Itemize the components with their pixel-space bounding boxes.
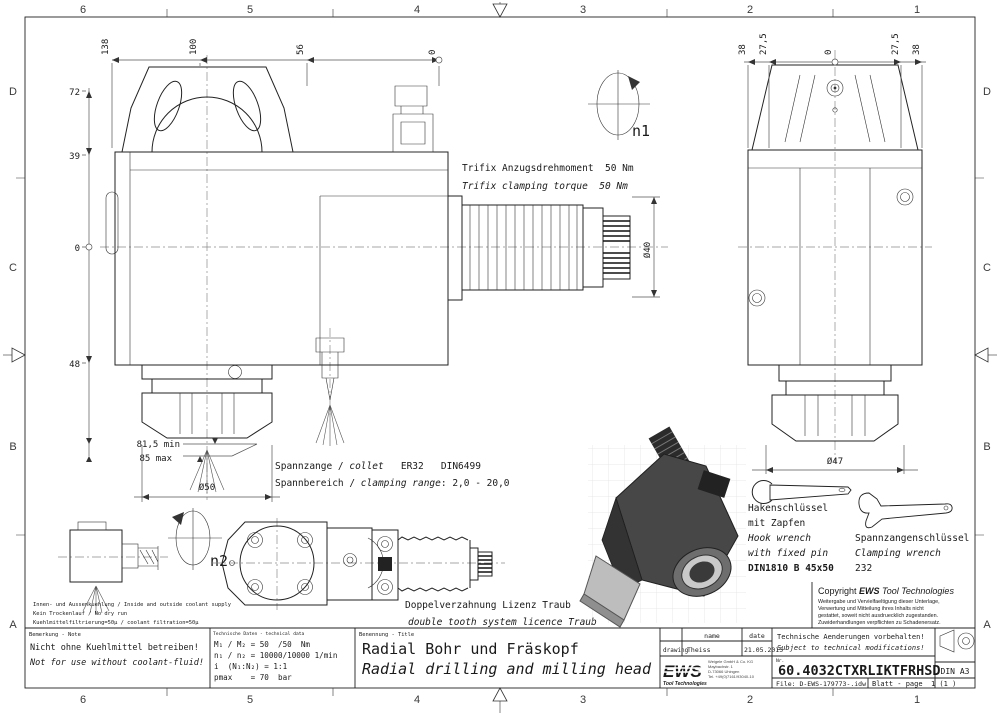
copyright-line: Verwertung und Mitteilung ihres Inhalts … xyxy=(818,606,924,612)
dim-label: 56 xyxy=(296,44,306,55)
tech-row: n₁ / n₂ = 10000/10000 1/min xyxy=(214,651,337,660)
n1-rotation-symbol: n1 xyxy=(588,70,650,140)
zone-col: 5 xyxy=(247,4,253,16)
tech-row: i (N₁:N₂) = 1:1 xyxy=(214,662,288,671)
copyright-line: Weitergabe und Vervielfaeltigung dieser … xyxy=(818,599,940,605)
title-block: Bemerkung - Note Nicht ohne Kuehlmittel … xyxy=(25,628,975,688)
centering-mark-top xyxy=(493,2,507,17)
rev-col-name: name xyxy=(704,632,720,640)
zone-col: 6 xyxy=(80,694,86,706)
projection-symbol-icon xyxy=(940,630,974,652)
dim-label: Ø50 xyxy=(199,482,215,493)
collet-val: ER32 DIN6499 xyxy=(384,461,482,472)
hook-wrench-drawing xyxy=(752,481,851,504)
dim-label: 0 xyxy=(428,50,438,55)
zone-col: 3 xyxy=(580,4,586,16)
zone-row: A xyxy=(9,619,17,631)
copyright-brand: EWS xyxy=(859,586,880,596)
tech-row: M₁ / M₂ = 50 /50 Nm xyxy=(214,640,310,649)
rev-row-name: Theiss xyxy=(687,646,711,654)
trifix-note-en: Trifix clamping torque 50 Nm xyxy=(462,181,628,192)
clamp-wrench-spec: 232 xyxy=(855,563,872,574)
zone-row: A xyxy=(983,619,991,631)
centering-mark-right xyxy=(975,348,997,362)
rev-col-date: date xyxy=(749,632,765,640)
zone-row: B xyxy=(983,441,990,453)
hook-wrench-en1: Hook wrench xyxy=(747,533,811,544)
right-side-view xyxy=(738,50,932,462)
note-de: Nicht ohne Kuehlmittel betreiben! xyxy=(30,643,199,653)
zone-col: 2 xyxy=(747,4,753,16)
zone-col: 4 xyxy=(414,694,420,706)
changes-en: Subject to technical modifications! xyxy=(777,644,925,652)
zone-col: 5 xyxy=(247,694,253,706)
zone-col: 3 xyxy=(580,694,586,706)
dim-max-label: 85 max xyxy=(139,454,172,464)
zone-row: C xyxy=(983,262,991,274)
tech-header: Technische Daten - technical data xyxy=(213,631,305,637)
dim-label: 48 xyxy=(69,360,80,370)
collet-note-line2: Spannbereich / clamping range: 2,0 - 20,… xyxy=(275,478,510,489)
hook-wrench-en2: with fixed pin xyxy=(748,548,828,559)
collet-it: collet xyxy=(349,461,384,472)
dim-label: 100 xyxy=(189,39,199,55)
hook-wrench-de1: Hakenschlüssel xyxy=(748,503,828,514)
drawing-sheet: 6 5 4 3 2 1 6 5 4 3 2 1 D C B A D C B A xyxy=(0,0,1000,715)
file-name: File: D-EWS-179773-.idw xyxy=(776,680,866,688)
dim-main-left: 72 39 0 48 81,5 min 85 max xyxy=(69,88,257,464)
dim-min-label: 81,5 min xyxy=(137,440,180,450)
dim-main-top: 138 100 56 0 xyxy=(101,39,442,148)
coolant-note-2: Kein Trockenlauf / No dry run xyxy=(33,611,127,617)
centering-mark-bottom xyxy=(493,688,507,713)
dim-label: 72 xyxy=(69,88,80,98)
dim-label: 27,5 xyxy=(891,33,901,55)
clamp-wrench-en: Clamping wrench xyxy=(855,548,941,559)
coolant-note-1: Innen- und Aussenkuehlung / Inside and o… xyxy=(33,602,232,608)
gear-note-en: double tooth system licence Traub xyxy=(408,617,597,628)
cad-drawing: 6 5 4 3 2 1 6 5 4 3 2 1 D C B A D C B A xyxy=(0,0,1000,715)
clamping-wrench-drawing xyxy=(859,493,952,528)
page-label: Blatt - page 1 (1 ) xyxy=(872,680,956,688)
n1-label: n1 xyxy=(632,122,650,140)
zone-col: 6 xyxy=(80,4,86,16)
dim-label: 0 xyxy=(824,50,834,55)
zone-col: 1 xyxy=(914,694,920,706)
drawing-title-de: Radial Bohr und Fräskopf xyxy=(362,640,579,658)
copyright-block: Copyright EWS Tool Technologies Weiterga… xyxy=(812,582,954,628)
copyright-suffix: Tool Technologies xyxy=(880,586,955,596)
hook-wrench-spec: DIN1810 B 45x50 xyxy=(748,563,834,574)
changes-de: Technische Aenderungen vorbehalten! xyxy=(777,633,925,641)
centering-mark-left xyxy=(3,348,25,362)
n2-rotation-symbol: n2 xyxy=(168,508,228,570)
detail-side-view xyxy=(58,522,168,614)
gear-note-de: Doppelverzahnung Lizenz Traub xyxy=(405,600,571,611)
rev-row-label: drawing xyxy=(663,647,689,654)
drawing-number: 60.4032CTXRLIKTFRHSD xyxy=(778,663,941,679)
zone-row: B xyxy=(9,441,16,453)
note-en: Not for use without coolant-fluid! xyxy=(29,658,204,668)
note-header: Bemerkung - Note xyxy=(29,632,81,638)
bottom-tool-view xyxy=(212,518,505,610)
zone-col: 1 xyxy=(914,4,920,16)
range-it: clamping range xyxy=(361,478,441,489)
copyright-prefix: Copyright xyxy=(818,586,859,596)
zone-col: 2 xyxy=(747,694,753,706)
zone-col: 4 xyxy=(414,4,420,16)
coolant-note-3: Kuehlmittelfiltrierung=50µ / coolant fil… xyxy=(33,620,199,626)
dim-label: 38 xyxy=(738,44,748,55)
zone-row: D xyxy=(983,86,991,98)
zone-row: C xyxy=(9,262,17,274)
company-line: Tel. +49(0)7161/93040-10 xyxy=(708,674,755,679)
collet-de: Spannzange / xyxy=(275,461,349,472)
copyright-heading: Copyright EWS Tool Technologies xyxy=(818,586,954,596)
trifix-note-de: Trifix Anzugsdrehmoment 50 Nm xyxy=(462,163,634,174)
range-de: Spannbereich / xyxy=(275,478,361,489)
range-val: : 2,0 - 20,0 xyxy=(441,478,510,489)
collet-note: Spannzange / collet ER32 DIN6499 Spannbe… xyxy=(275,461,510,489)
copyright-line: Zuwiderhandlungen verpflichten zu Schade… xyxy=(818,620,941,626)
main-front-view xyxy=(100,55,668,500)
drawing-title-en: Radial drilling and milling head xyxy=(362,660,652,678)
sheet-format: DIN A3 xyxy=(941,667,970,676)
iso-3d-view xyxy=(580,427,746,627)
dim-label: Ø47 xyxy=(827,456,843,467)
dim-label: 138 xyxy=(101,39,111,55)
copyright-line: gestattet, soweit nicht ausdruecklich zu… xyxy=(818,613,938,619)
title-header: Benennung - Title xyxy=(359,632,414,638)
clamp-wrench-de: Spannzangenschlüssel xyxy=(855,533,969,544)
collet-note-line1: Spannzange / collet ER32 DIN6499 xyxy=(275,461,481,472)
ews-logo: EWS Tool Technologies Weigele GmbH & Co.… xyxy=(662,659,755,687)
tech-row: pmax = 70 bar xyxy=(214,673,292,682)
dim-label: 39 xyxy=(69,152,80,162)
dim-label: 0 xyxy=(75,244,80,254)
hook-wrench-de2: mit Zapfen xyxy=(748,518,805,529)
n2-label: n2 xyxy=(210,552,228,570)
zone-row: D xyxy=(9,86,17,98)
dim-label: 38 xyxy=(912,44,922,55)
dim-label: 27,5 xyxy=(759,33,769,55)
ews-logo-sub: Tool Technologies xyxy=(663,681,707,687)
dim-dia40: Ø40 xyxy=(632,197,660,297)
dim-label: Ø40 xyxy=(642,242,653,258)
